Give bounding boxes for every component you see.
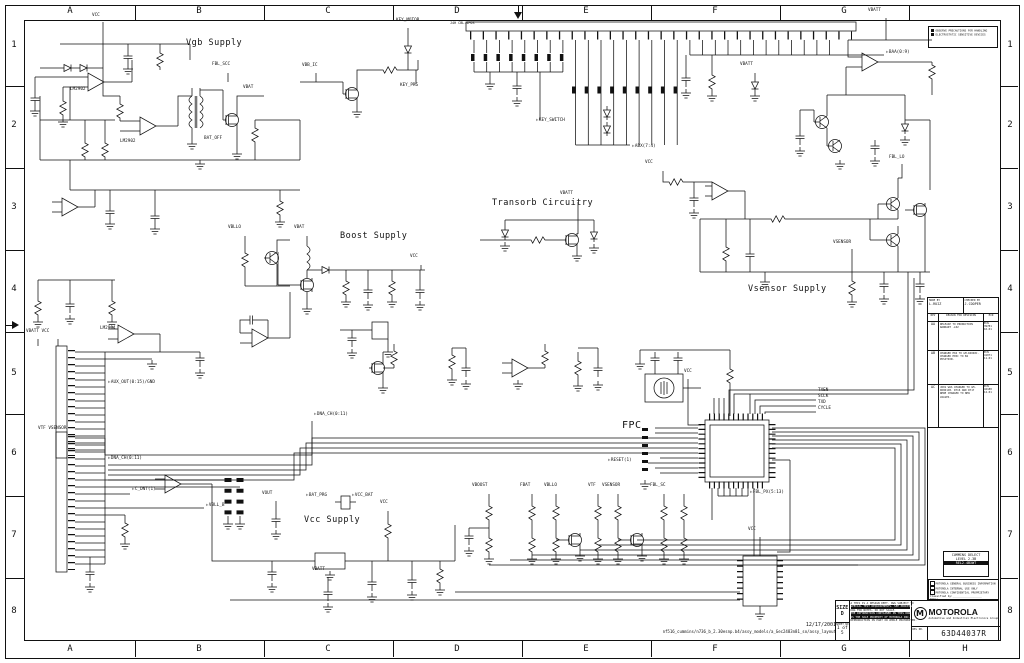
net-label: VBATT VCC: [26, 330, 49, 335]
net-label: SCLK: [818, 395, 828, 400]
net-label: VCC: [380, 501, 388, 506]
schematic-sheet: A B C D E F G A B C D E F G H 1 2 3 4 5 …: [0, 0, 1024, 663]
part-label: LM2902: [70, 88, 86, 93]
offpage-label: ▷ABX(7:4): [632, 144, 656, 150]
classification-box: MOTOROLA GENERAL BUSINESS INFORMATION MO…: [928, 579, 999, 600]
net-label: AUX_OUT(0:15)/GND: [111, 380, 155, 385]
sheet-no-value: 1 of 5: [836, 626, 849, 636]
revision-row: AB CHANGED E04 TO GM-D4048C. CHANGED E05…: [928, 351, 998, 385]
offpage-label: ▷BAT_PRG: [306, 493, 327, 499]
esd-note-box: OBSERVE PRECAUTIONS FOR HANDLING ELECTRO…: [928, 26, 998, 48]
net-label: VCC: [684, 370, 692, 375]
motorola-logo-icon: M: [914, 607, 927, 620]
net-label: KEY_SWITCH: [539, 118, 565, 123]
section-title-vcc: Vcc Supply: [304, 515, 360, 525]
net-label: CYCLE: [818, 407, 831, 412]
section-title-fpc: FPC: [622, 420, 642, 431]
net-label: VTF: [588, 484, 596, 489]
offpage-label: ▷AUX_OUT(0:15)/GND: [108, 380, 155, 386]
net-label: VCC_BAT: [355, 493, 373, 498]
offpage-label: ▷BAA(0:9): [886, 50, 910, 56]
offpage-label: ▷C_DNT(1): [132, 487, 156, 493]
net-label: DNA_CH(0:11): [317, 412, 348, 417]
section-title-boost: Boost Supply: [340, 231, 407, 241]
project-id-box: CUMMINS DELECT LEVEL 2.3B REL2-4BXWT: [943, 551, 989, 577]
title-block: SIZE D SHEET_NO 1 of 5 A THIS IS A DESIG…: [835, 600, 999, 641]
esd-checkbox-icon: [931, 33, 934, 36]
rel-no-label: REL NO.: [912, 627, 928, 640]
classification-option: MOTOROLA GENERAL BUSINESS INFORMATION: [930, 581, 997, 586]
esd-checkbox-icon: [931, 29, 934, 32]
net-label: BAA(0:9): [889, 50, 910, 55]
made-by-value: L.RUIZ: [929, 302, 962, 306]
net-label: VBOOST: [472, 484, 488, 489]
esd-note-line: ELECTROSTATIC SENSITIVE DEVICES: [931, 33, 995, 37]
net-label: VTF VSENSOR: [38, 427, 66, 432]
company-subtitle: Automotive and Industrial Electronics Gr…: [929, 617, 999, 620]
net-label: TXEN: [818, 389, 828, 394]
file-path: nf516_cummins/n736_b_2.30esnp.b4/assy_mo…: [560, 629, 836, 634]
net-label: TXD: [818, 401, 826, 406]
col-header-rev: REV: [928, 314, 939, 321]
net-label: FBL_SCC: [212, 63, 230, 68]
section-title-vgb: Vgb Supply: [186, 38, 242, 48]
net-label: BAT_OFF: [204, 137, 222, 142]
section-title-vsensor: Vsensor Supply: [748, 284, 827, 294]
part-label: LM2902: [120, 140, 136, 145]
offpage-label: ▷DNA_CH(0:11): [108, 456, 142, 462]
net-label: FBL_SC: [650, 484, 666, 489]
net-label: VSENSOR: [833, 241, 851, 246]
net-label: FBAT: [520, 484, 530, 489]
net-label: VCC: [92, 14, 100, 19]
net-label: BAT_PRG: [309, 493, 327, 498]
offpage-label: ▷VCC_BAT: [352, 493, 373, 499]
net-label: VBAT: [243, 86, 253, 91]
offpage-label: ▷RESET(1): [608, 458, 632, 464]
net-label: ABX(7:4): [635, 144, 656, 149]
part-label: LM2904: [100, 327, 116, 332]
net-label: VBATT: [560, 192, 573, 197]
col-header-desc: REASON FOR REVISION: [939, 314, 984, 321]
region-row4-left: [33, 280, 160, 352]
net-label: VBLLO: [544, 484, 557, 489]
net-label: VBATT: [740, 63, 753, 68]
offpage-label: ▷VBLL_B: [206, 503, 224, 509]
net-label: VBLL_B: [209, 503, 225, 508]
checked-by-value: J.COOPER: [965, 302, 998, 306]
net-label: VCC: [645, 161, 653, 166]
region-boost: [240, 236, 425, 358]
col-header-ecn: ECN: [984, 314, 998, 321]
legal-line: REPRODUCTION IN PART OR WHOLE PROHIBITED…: [851, 619, 910, 622]
region-fpc: [635, 272, 914, 556]
net-label: C_DNT(1): [135, 487, 156, 492]
net-label: KEY_PRG: [400, 84, 418, 89]
net-label: VBATT: [312, 568, 325, 573]
drawing-date: 12/17/2001: [760, 622, 836, 628]
region-dividers: [464, 494, 689, 564]
net-label: VSENSOR: [602, 484, 620, 489]
schematic-linework: [0, 0, 1024, 663]
part-number: 63D44037R: [928, 627, 1001, 640]
net-label: DNA_CH(0:11): [111, 456, 142, 461]
net-label: KEY_MOTOR: [396, 19, 419, 24]
net-label: RESET(1): [611, 458, 632, 463]
region-transorb: [480, 202, 599, 261]
offpage-label: ▷DNA_CH(0:11): [314, 412, 348, 418]
project-line3: REL2-4BXWT: [944, 561, 988, 565]
size-cell: SIZE D: [836, 601, 849, 623]
connector-refdes: J4H CBL-4POS: [450, 22, 475, 26]
region-top-connector: [466, 22, 884, 145]
section-title-transorb: Transorb Circuitry: [492, 198, 593, 208]
region-vcc: [230, 496, 455, 612]
net-label: VBLLO: [228, 226, 241, 231]
net-label: VCC: [748, 528, 756, 533]
net-label: VBAT: [294, 226, 304, 231]
net-label: FBL_LO: [889, 156, 905, 161]
revision-row: AA RELEASE TO PRODUCTION WARRANT -L02 EC…: [928, 322, 998, 351]
region-mid-parts: [369, 344, 603, 393]
net-label: FBL_PX(5:13): [753, 490, 784, 495]
offpage-label: ▷KEY_SWITCH: [536, 118, 565, 124]
net-label: VCC: [410, 255, 418, 260]
net-label: VOUT: [262, 492, 272, 497]
region-vgb-supply: [30, 22, 418, 234]
net-label: VBB_IC: [302, 64, 318, 69]
revision-row: AC J601 WAS CHANGED TO GM-D6061JB. R716 …: [928, 385, 998, 428]
net-label: VBATT: [868, 9, 881, 14]
region-right-top-amp: [795, 18, 935, 190]
offpage-label: ▷FBL_PX(5:13): [750, 490, 784, 496]
region-left-connectors: [38, 339, 312, 592]
